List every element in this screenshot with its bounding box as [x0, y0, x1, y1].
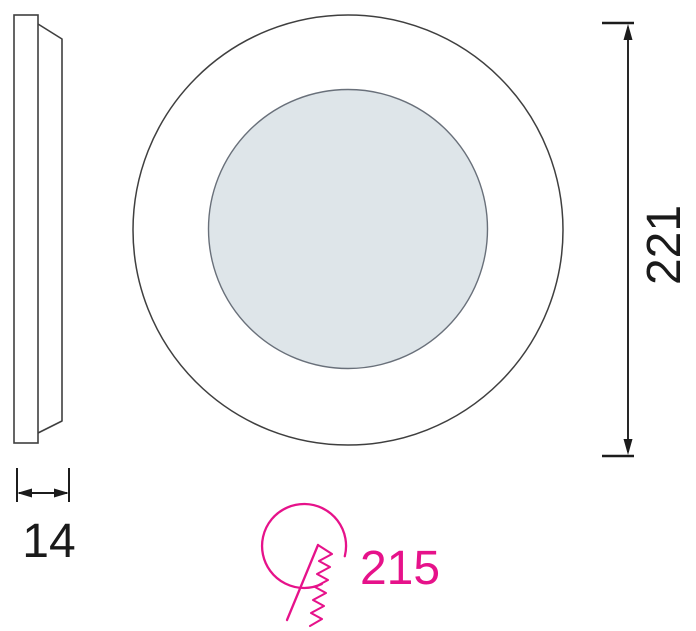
cutout-annotation: 215 — [262, 504, 440, 626]
diameter-dimension: 221 — [602, 23, 691, 456]
arrow-right-icon — [54, 489, 69, 498]
cutout-value: 215 — [360, 542, 440, 595]
front-view-diffuser-lens — [209, 90, 488, 369]
cutout-circle-arc — [262, 504, 346, 588]
thickness-value: 14 — [22, 515, 75, 568]
dimension-drawing: 14 221 215 — [0, 0, 696, 631]
arrow-down-icon — [624, 439, 633, 455]
drawing-canvas: 14 221 215 — [0, 0, 696, 631]
side-view-front-panel — [14, 15, 38, 443]
saw-cutout-icon — [262, 504, 346, 626]
side-view — [14, 15, 62, 443]
front-view — [133, 15, 563, 445]
arrow-left-icon — [17, 489, 32, 498]
saw-blade-edge — [287, 545, 318, 620]
diameter-value: 221 — [638, 205, 691, 285]
side-view-back-housing — [38, 24, 62, 433]
thickness-dimension: 14 — [17, 468, 76, 568]
arrow-up-icon — [624, 24, 633, 40]
